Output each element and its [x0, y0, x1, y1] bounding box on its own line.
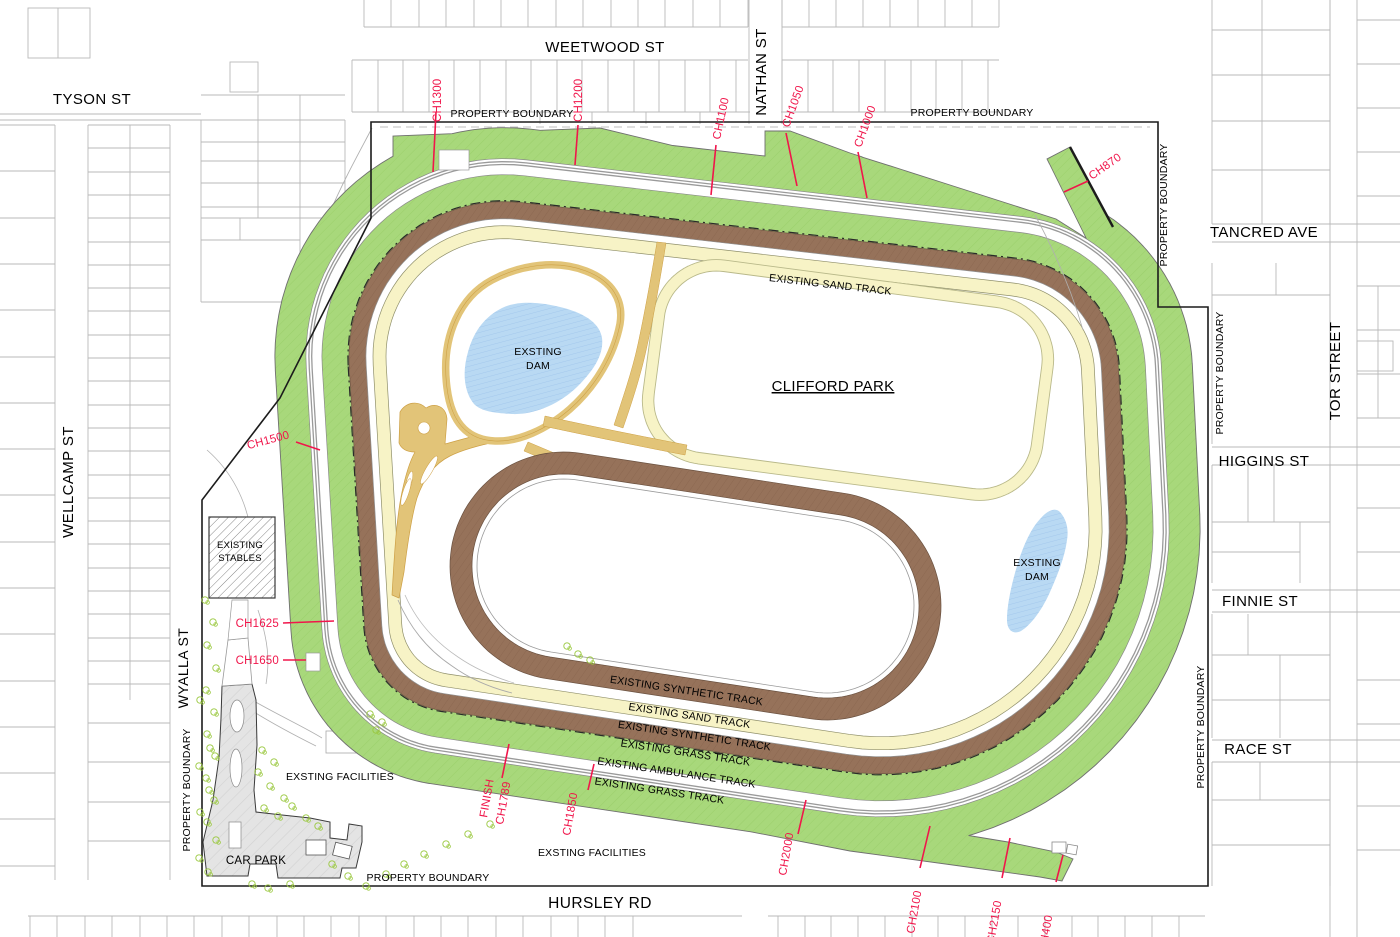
svg-text:EXISTING: EXISTING	[217, 540, 263, 551]
svg-text:TYSON ST: TYSON ST	[53, 91, 131, 108]
svg-text:PROPERTY BOUNDARY: PROPERTY BOUNDARY	[181, 728, 193, 851]
svg-text:WELLCAMP ST: WELLCAMP ST	[60, 426, 77, 538]
svg-text:TOR STREET: TOR STREET	[1327, 322, 1344, 421]
svg-text:CAR PARK: CAR PARK	[226, 855, 286, 867]
svg-text:DAM: DAM	[1025, 571, 1049, 583]
svg-text:PROPERTY BOUNDARY: PROPERTY BOUNDARY	[450, 108, 573, 120]
svg-text:DAM: DAM	[526, 360, 550, 372]
svg-text:WYALLA ST: WYALLA ST	[175, 628, 191, 708]
svg-text:CH1200: CH1200	[573, 79, 585, 122]
svg-text:RACE ST: RACE ST	[1224, 741, 1292, 758]
svg-text:PROPERTY BOUNDARY: PROPERTY BOUNDARY	[1158, 143, 1170, 266]
svg-text:PROPERTY BOUNDARY: PROPERTY BOUNDARY	[1214, 311, 1226, 434]
svg-text:EXSTING: EXSTING	[514, 346, 562, 358]
svg-text:CH1625: CH1625	[236, 618, 279, 630]
svg-text:HURSLEY RD: HURSLEY RD	[548, 895, 652, 912]
svg-text:CLIFFORD PARK: CLIFFORD PARK	[772, 378, 895, 395]
svg-text:PROPERTY BOUNDARY: PROPERTY BOUNDARY	[910, 107, 1033, 119]
svg-text:CH1650: CH1650	[236, 655, 279, 667]
svg-text:PROPERTY BOUNDARY: PROPERTY BOUNDARY	[1195, 665, 1207, 788]
svg-text:STABLES: STABLES	[218, 553, 261, 564]
svg-text:EXSTING: EXSTING	[1013, 557, 1061, 569]
svg-text:PROPERTY BOUNDARY: PROPERTY BOUNDARY	[366, 872, 489, 884]
svg-text:WEETWOOD ST: WEETWOOD ST	[545, 39, 664, 56]
svg-text:EXSTING FACILITIES: EXSTING FACILITIES	[538, 847, 646, 859]
svg-text:FINNIE ST: FINNIE ST	[1222, 593, 1298, 610]
svg-text:NATHAN ST: NATHAN ST	[753, 28, 770, 116]
svg-text:HIGGINS ST: HIGGINS ST	[1219, 453, 1310, 470]
svg-text:EXSTING FACILITIES: EXSTING FACILITIES	[286, 771, 394, 783]
svg-text:CH1300: CH1300	[432, 79, 444, 122]
svg-text:TANCRED AVE: TANCRED AVE	[1210, 224, 1318, 241]
